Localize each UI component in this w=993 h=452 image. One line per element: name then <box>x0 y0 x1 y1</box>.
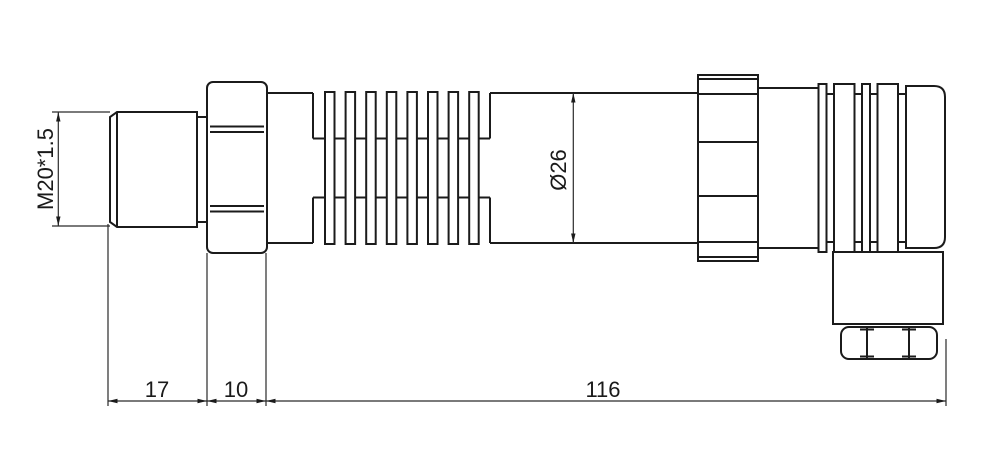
body-diameter-label: Ø26 <box>546 149 571 191</box>
technical-drawing-canvas: M20*1.5 Ø26 17 10 116 <box>0 0 993 452</box>
cooling-fin <box>346 92 356 244</box>
connector-ribs <box>819 84 899 252</box>
connector-rib <box>819 84 827 252</box>
cooling-fin <box>325 92 335 244</box>
knurled-collar <box>698 75 758 261</box>
connector-lower-housing <box>833 252 943 324</box>
connector-rib <box>878 84 899 252</box>
thread-stud <box>110 112 207 227</box>
arrowhead <box>108 399 118 403</box>
arrowhead <box>56 217 60 227</box>
arrowhead <box>207 399 217 403</box>
arrowhead <box>937 399 947 403</box>
hex-width-label: 10 <box>224 377 248 402</box>
main-body <box>490 93 698 243</box>
hex-nut <box>207 82 267 253</box>
body-length-label: 116 <box>585 377 620 402</box>
connector-rib <box>862 84 870 252</box>
cooling-fin <box>366 92 376 244</box>
cooling-fin <box>449 92 459 244</box>
dimension-body-diameter: Ø26 <box>546 93 576 243</box>
arrowhead <box>571 234 575 244</box>
cooling-fin <box>387 92 397 244</box>
fin-core-lines <box>313 139 490 198</box>
arrowhead <box>571 93 575 103</box>
cooling-fins <box>313 92 490 244</box>
cooling-fin <box>407 92 417 244</box>
connector-rib <box>834 84 855 252</box>
dimension-thread-spec: M20*1.5 <box>33 112 110 226</box>
pressure-transmitter-drawing: M20*1.5 Ø26 17 10 116 <box>0 0 993 452</box>
arrowhead <box>257 399 267 403</box>
body-left-section <box>266 93 313 243</box>
arrowhead <box>198 399 208 403</box>
arrowhead <box>266 399 276 403</box>
cooling-fin <box>428 92 438 244</box>
thread-spec-label: M20*1.5 <box>33 128 58 210</box>
thread-length-label: 17 <box>145 377 169 402</box>
connector-end-cap <box>906 86 945 248</box>
connector-neck <box>758 88 818 248</box>
arrowhead <box>56 112 60 122</box>
cable-gland-nut <box>841 327 937 359</box>
cooling-fin <box>469 92 479 244</box>
